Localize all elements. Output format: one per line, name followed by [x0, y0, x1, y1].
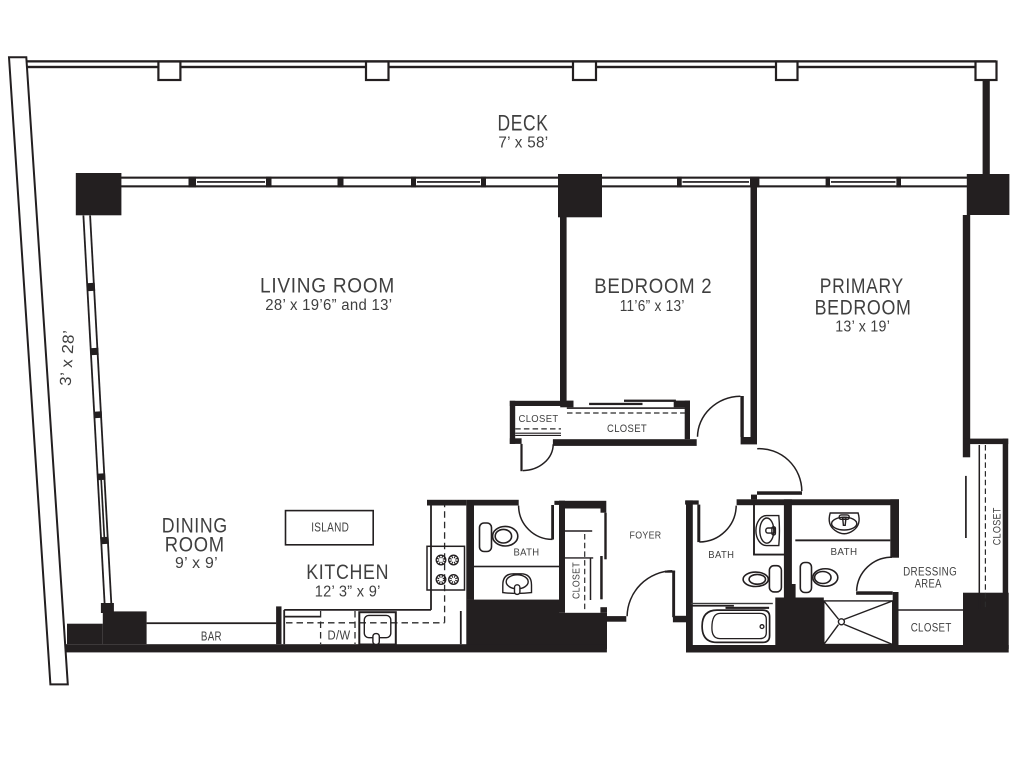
svg-text:28’ x 19’6” and 13’: 28’ x 19’6” and 13’: [265, 297, 392, 314]
svg-text:DRESSING: DRESSING: [903, 566, 957, 578]
svg-text:ISLAND: ISLAND: [311, 520, 349, 535]
svg-text:3’ x 28’: 3’ x 28’: [58, 330, 79, 387]
svg-text:9’ x 9’: 9’ x 9’: [175, 555, 218, 572]
svg-text:BEDROOM: BEDROOM: [815, 297, 912, 320]
svg-text:PRIMARY: PRIMARY: [820, 275, 904, 298]
svg-text:11’6” x 13’: 11’6” x 13’: [620, 298, 685, 315]
svg-text:LIVING ROOM: LIVING ROOM: [260, 275, 395, 298]
svg-text:CLOSET: CLOSET: [607, 423, 647, 435]
svg-text:13’ x 19’: 13’ x 19’: [835, 319, 890, 336]
svg-text:BEDROOM 2: BEDROOM 2: [594, 275, 712, 298]
svg-text:BAR: BAR: [201, 629, 222, 644]
svg-text:CLOSET: CLOSET: [519, 413, 559, 425]
svg-text:CLOSET: CLOSET: [571, 562, 583, 599]
svg-text:CLOSET: CLOSET: [992, 507, 1004, 545]
svg-text:BATH: BATH: [708, 549, 734, 561]
svg-text:DECK: DECK: [498, 110, 549, 135]
svg-text:ROOM: ROOM: [165, 534, 225, 557]
svg-text:BATH: BATH: [831, 546, 858, 558]
svg-text:12’ 3” x 9’: 12’ 3” x 9’: [315, 583, 381, 600]
svg-text:KITCHEN: KITCHEN: [306, 561, 389, 584]
svg-text:D/W: D/W: [328, 627, 351, 642]
svg-text:AREA: AREA: [915, 579, 942, 591]
svg-text:BATH: BATH: [514, 547, 540, 559]
svg-text:FOYER: FOYER: [630, 529, 662, 541]
svg-text:CLOSET: CLOSET: [911, 622, 952, 634]
svg-text:7’ x 58’: 7’ x 58’: [498, 135, 548, 152]
